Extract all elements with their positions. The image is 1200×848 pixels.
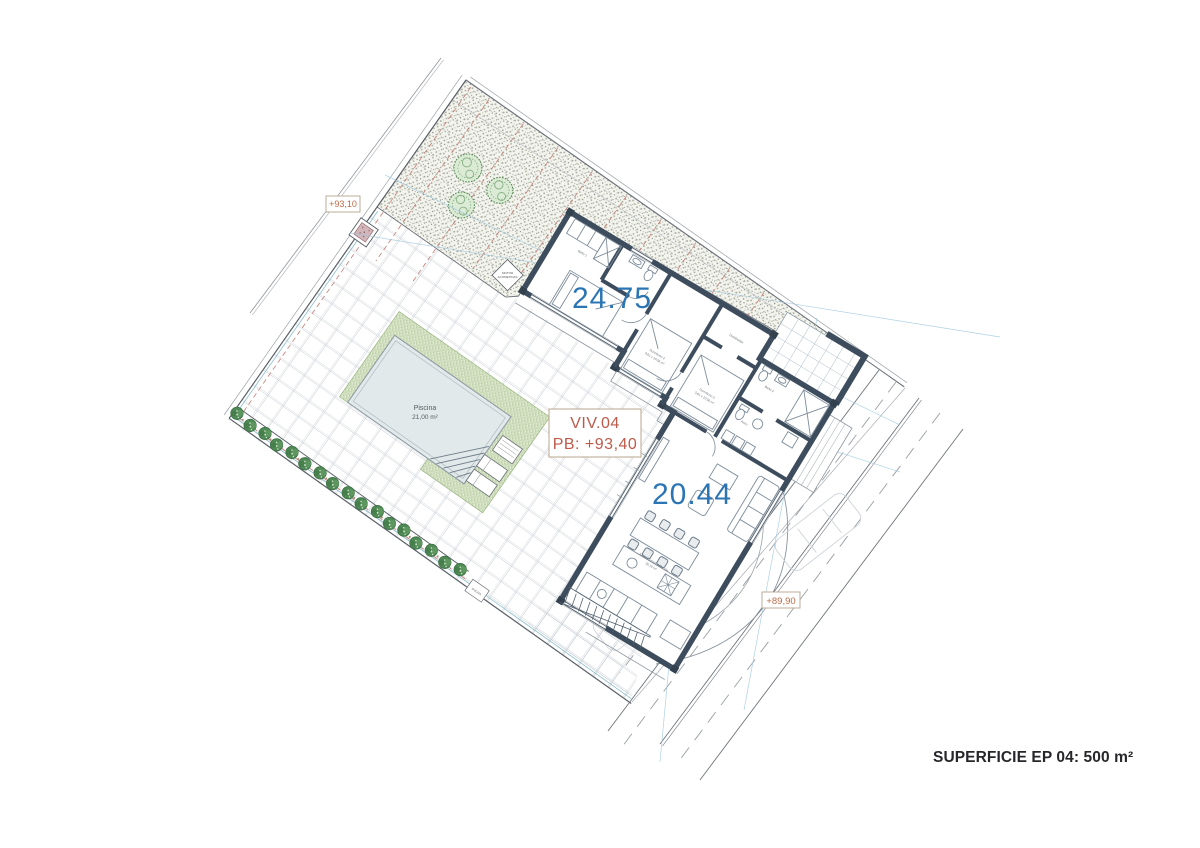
svg-text:VIV.04: VIV.04 (570, 415, 620, 432)
svg-text:Piscina: Piscina (414, 405, 437, 412)
svg-text:+93,10: +93,10 (329, 199, 357, 209)
svg-text:21,00 m²: 21,00 m² (412, 414, 438, 421)
svg-text:ACOMETIDAS: ACOMETIDAS (498, 275, 518, 279)
svg-text:PB: +93,40: PB: +93,40 (553, 436, 638, 453)
svg-text:20.44: 20.44 (652, 478, 732, 511)
svg-text:SUPERFICIE EP 04: 500 m²: SUPERFICIE EP 04: 500 m² (933, 749, 1133, 766)
svg-text:+89,90: +89,90 (766, 596, 795, 607)
svg-text:24.75: 24.75 (572, 282, 652, 315)
